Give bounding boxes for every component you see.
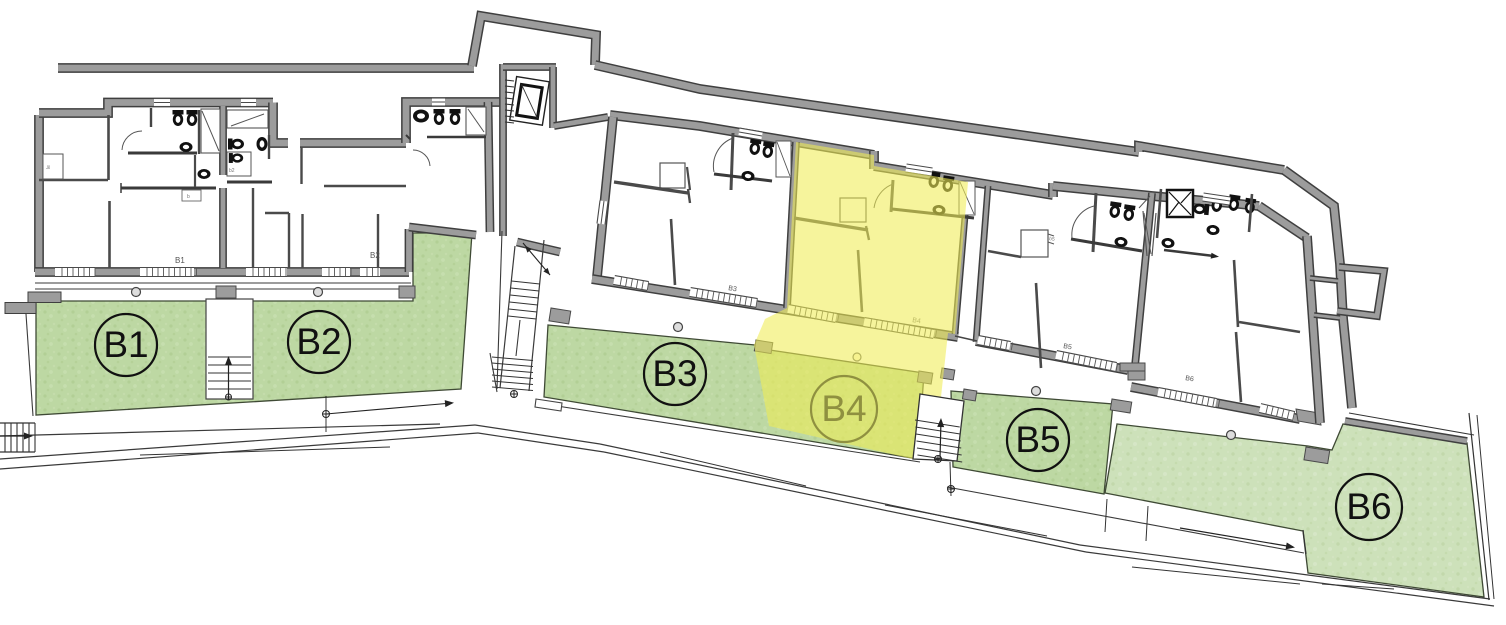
svg-text:B4: B4 bbox=[821, 388, 866, 429]
svg-text:B5: B5 bbox=[1015, 419, 1060, 460]
svg-text:b2: b2 bbox=[229, 168, 235, 174]
svg-text:B1: B1 bbox=[103, 324, 148, 365]
svg-text:B3: B3 bbox=[652, 353, 697, 394]
svg-text:B6: B6 bbox=[1346, 486, 1391, 527]
svg-text:le: le bbox=[46, 165, 52, 169]
svg-text:B2: B2 bbox=[296, 321, 341, 362]
svg-text:B2: B2 bbox=[370, 251, 380, 260]
svg-text:B6: B6 bbox=[1185, 375, 1195, 383]
svg-text:B3: B3 bbox=[728, 285, 738, 293]
svg-text:B5: B5 bbox=[1063, 343, 1073, 351]
svg-text:B1: B1 bbox=[175, 256, 185, 265]
svg-text:b: b bbox=[187, 194, 190, 200]
